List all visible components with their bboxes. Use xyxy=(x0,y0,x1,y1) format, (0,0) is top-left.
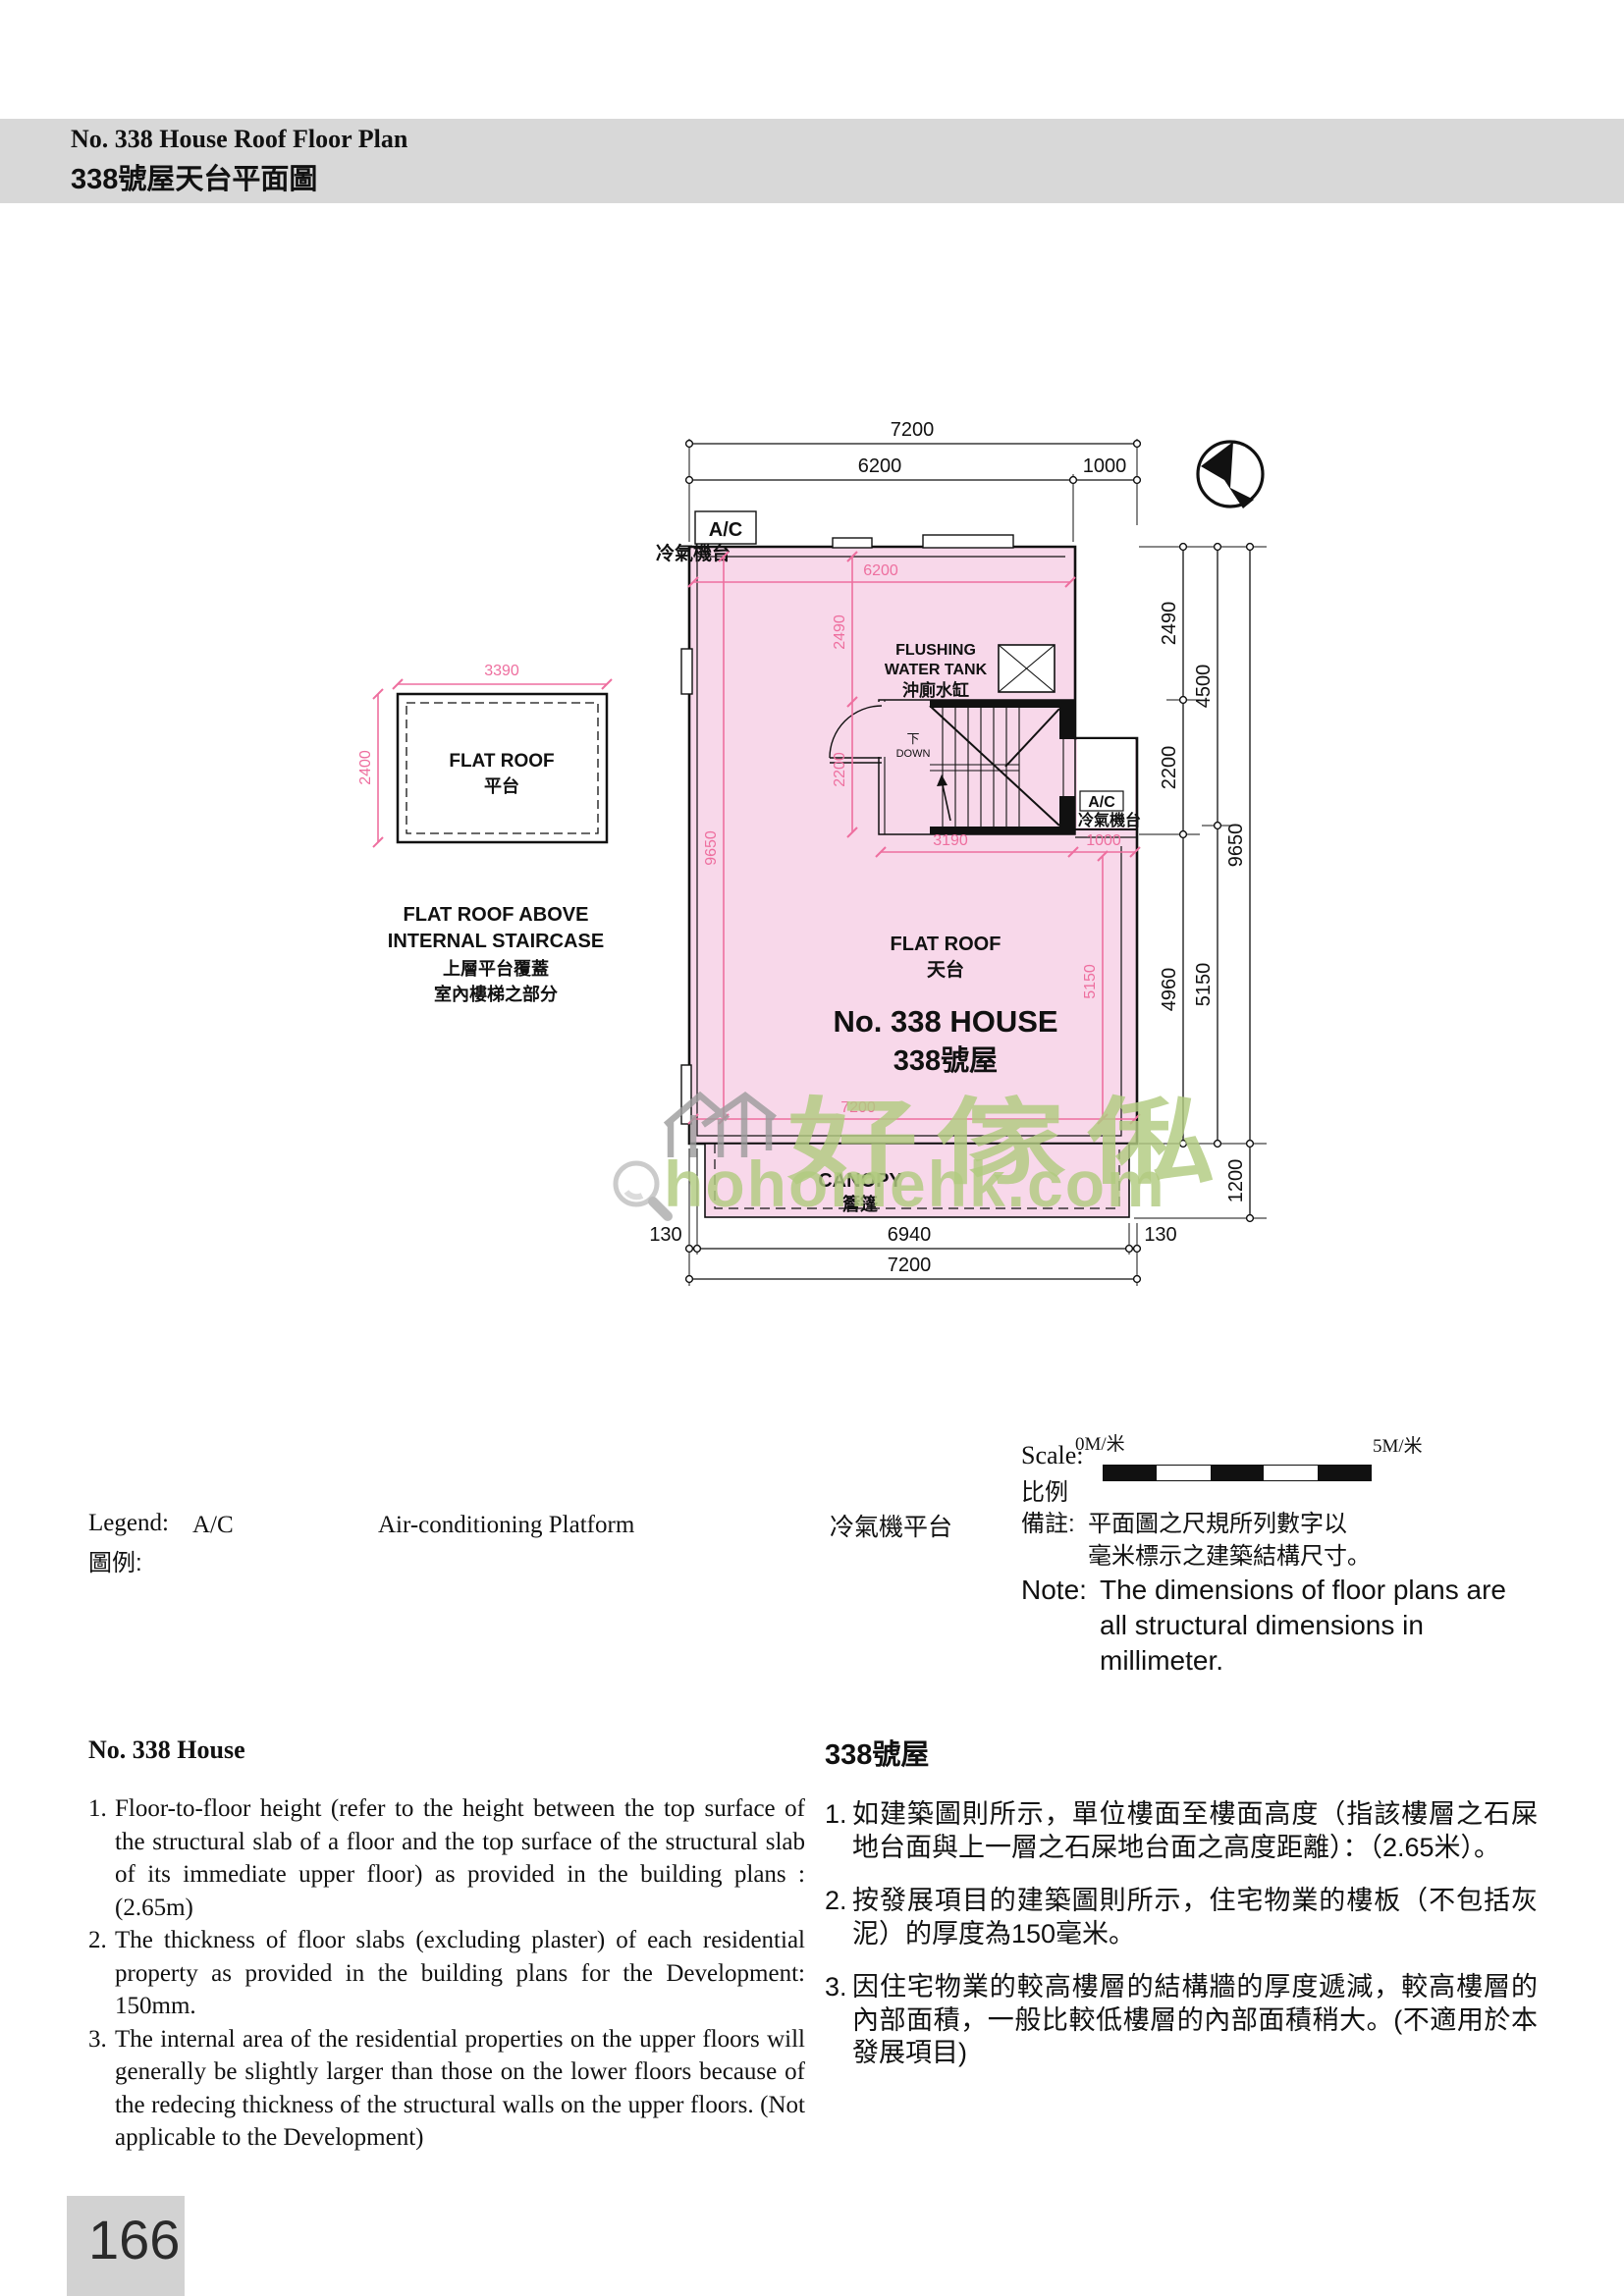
ac-platform-right: A/C 冷氣機台 xyxy=(1075,739,1141,837)
ac-right-label: A/C xyxy=(1088,794,1115,811)
svg-text:5150: 5150 xyxy=(1193,963,1215,1007)
house-label-en: No. 338 HOUSE xyxy=(833,1004,1057,1039)
north-arrow-icon xyxy=(1198,442,1263,508)
svg-text:7200: 7200 xyxy=(840,1099,876,1116)
list-item: 3. The internal area of the residential … xyxy=(88,2023,805,2155)
list-item: 3. 因住宅物業的較高樓層的結構牆的厚度遞減，較高樓層的內部面積，一般比較低樓層… xyxy=(825,1971,1538,2070)
right-dimensions: 2490 2200 4960 4500 5150 9650 1200 xyxy=(1134,544,1267,1222)
item-text: The thickness of floor slabs (excluding … xyxy=(115,1924,805,2023)
svg-text:7200: 7200 xyxy=(888,1255,932,1276)
brochure-page: No. 338 House Roof Floor Plan 338號屋天台平面圖… xyxy=(0,0,1624,2296)
notes-chinese-heading: 338號屋 xyxy=(825,1732,1538,1773)
notes-english: No. 338 House 1. Floor-to-floor height (… xyxy=(88,1735,805,2155)
note-label-zh: 備註: xyxy=(1021,1508,1088,1573)
item-number: 2. xyxy=(88,1924,115,2023)
item-number: 3. xyxy=(88,2023,115,2155)
flushing-label-zh: 沖廁水缸 xyxy=(902,680,969,700)
main-roof-outline xyxy=(681,535,1137,1217)
scale-label-en: Scale: xyxy=(1021,1441,1084,1470)
svg-text:1000: 1000 xyxy=(1083,455,1127,477)
roof-floor-plan-drawing: FLAT ROOF 平台 3390 2400 FLAT ROOF ABOVE I… xyxy=(334,412,1473,1296)
svg-text:130: 130 xyxy=(649,1224,681,1246)
item-text: 按發展項目的建築圖則所示，住宅物業的樓板（不包括灰泥）的厚度為150毫米。 xyxy=(852,1885,1538,1950)
page-number: 166 xyxy=(88,2208,180,2271)
down-label-zh: 下 xyxy=(906,731,919,746)
svg-text:6940: 6940 xyxy=(888,1224,932,1246)
item-text: 如建築圖則所示，單位樓面至樓面高度（指該樓層之石屎地台面與上一層之石屎地台面之高… xyxy=(852,1798,1538,1864)
note-label-en: Note: xyxy=(1021,1573,1100,1679)
house-label-zh: 338號屋 xyxy=(893,1044,998,1077)
notes-english-heading: No. 338 House xyxy=(88,1735,805,1765)
scale-end-value: 5M/米 xyxy=(1373,1431,1423,1458)
item-text: 因住宅物業的較高樓層的結構牆的厚度遞減，較高樓層的內部面積，一般比較低樓層的內部… xyxy=(852,1971,1538,2070)
svg-text:2490: 2490 xyxy=(1159,602,1180,646)
ac-top-label: A/C xyxy=(709,519,742,541)
canopy-area xyxy=(705,1144,1129,1217)
scale-label-zh: 比例 xyxy=(1021,1472,1068,1507)
note-text-en-2: all structural dimensions in xyxy=(1100,1608,1506,1643)
item-number: 2. xyxy=(825,1885,852,1950)
down-label-en: DOWN xyxy=(896,748,931,760)
svg-text:2490: 2490 xyxy=(832,614,848,650)
svg-text:2200: 2200 xyxy=(832,752,848,787)
ac-right-label-zh: 冷氣機台 xyxy=(1078,811,1141,829)
svg-text:1200: 1200 xyxy=(1225,1159,1247,1203)
dim-3390: 3390 xyxy=(484,663,519,679)
canopy-label-zh: 簷篷 xyxy=(841,1194,879,1214)
item-text: The internal area of the residential pro… xyxy=(115,2023,805,2155)
notes-chinese: 338號屋 1. 如建築圖則所示，單位樓面至樓面高度（指該樓層之石屎地台面與上一… xyxy=(825,1732,1538,2091)
note-text-en-1: The dimensions of floor plans are xyxy=(1100,1573,1506,1608)
svg-text:6200: 6200 xyxy=(858,455,902,477)
flat-roof-label-zh: 天台 xyxy=(927,958,964,981)
svg-text:4500: 4500 xyxy=(1193,665,1215,709)
svg-text:5150: 5150 xyxy=(1082,964,1099,999)
flat-roof-label-en: FLAT ROOF xyxy=(891,934,1001,955)
side-caption-3: 上層平台覆蓋 xyxy=(443,958,549,979)
side-flat-roof-label-en: FLAT ROOF xyxy=(449,751,554,772)
list-item: 2. The thickness of floor slabs (excludi… xyxy=(88,1924,805,2023)
legend-value-en: Air-conditioning Platform xyxy=(378,1512,634,1539)
page-title-zh: 338號屋天台平面圖 xyxy=(71,156,317,197)
item-number: 3. xyxy=(825,1971,852,2070)
legend-label-en: Legend: xyxy=(88,1510,169,1537)
item-number: 1. xyxy=(88,1792,115,1924)
scale-bar xyxy=(1103,1465,1372,1481)
scale-block: Scale: 比例 0M/米 5M/米 xyxy=(1021,1429,1492,1508)
svg-text:1000: 1000 xyxy=(1086,832,1121,849)
list-item: 1. Floor-to-floor height (refer to the h… xyxy=(88,1792,805,1924)
flushing-label-2: WATER TANK xyxy=(885,662,988,678)
legend-label-zh: 圖例: xyxy=(88,1543,142,1577)
svg-text:6200: 6200 xyxy=(863,562,898,579)
svg-text:4960: 4960 xyxy=(1159,968,1180,1012)
item-number: 1. xyxy=(825,1798,852,1864)
note-block: 備註: 平面圖之尺規所列數字以 毫米標示之建築結構尺寸。 Note: The d… xyxy=(1021,1508,1512,1679)
page-number-box: 166 xyxy=(67,2196,185,2296)
svg-text:7200: 7200 xyxy=(891,419,935,441)
item-text: Floor-to-floor height (refer to the heig… xyxy=(115,1792,805,1924)
svg-text:3190: 3190 xyxy=(933,832,968,849)
note-text-en-3: millimeter. xyxy=(1100,1643,1506,1679)
side-flat-roof-label-zh: 平台 xyxy=(484,775,519,796)
flushing-label-1: FLUSHING xyxy=(895,642,976,659)
legend-value-zh: 冷氣機平台 xyxy=(830,1508,952,1543)
side-caption-1: FLAT ROOF ABOVE xyxy=(404,904,589,926)
svg-text:9650: 9650 xyxy=(1225,824,1247,868)
page-header: No. 338 House Roof Floor Plan 338號屋天台平面圖 xyxy=(0,119,1624,203)
side-flat-roof-box: FLAT ROOF 平台 3390 2400 FLAT ROOF ABOVE I… xyxy=(357,663,612,1004)
canopy-label-en: CANOPY xyxy=(818,1170,902,1192)
svg-text:130: 130 xyxy=(1144,1224,1176,1246)
list-item: 1. 如建築圖則所示，單位樓面至樓面高度（指該樓層之石屎地台面與上一層之石屎地台… xyxy=(825,1798,1538,1864)
note-text-zh-1: 平面圖之尺規所列數字以 xyxy=(1088,1508,1371,1540)
list-item: 2. 按發展項目的建築圖則所示，住宅物業的樓板（不包括灰泥）的厚度為150毫米。 xyxy=(825,1885,1538,1950)
legend-key: A/C xyxy=(192,1512,234,1539)
side-caption-2: INTERNAL STAIRCASE xyxy=(388,931,604,952)
dim-2400: 2400 xyxy=(357,750,374,785)
svg-text:2200: 2200 xyxy=(1159,746,1180,790)
note-text-zh-2: 毫米標示之建築結構尺寸。 xyxy=(1088,1540,1371,1573)
page-title-en: No. 338 House Roof Floor Plan xyxy=(71,125,407,154)
side-caption-4: 室內樓梯之部分 xyxy=(434,984,558,1004)
scale-start-value: 0M/米 xyxy=(1075,1429,1125,1456)
svg-text:9650: 9650 xyxy=(703,830,720,866)
